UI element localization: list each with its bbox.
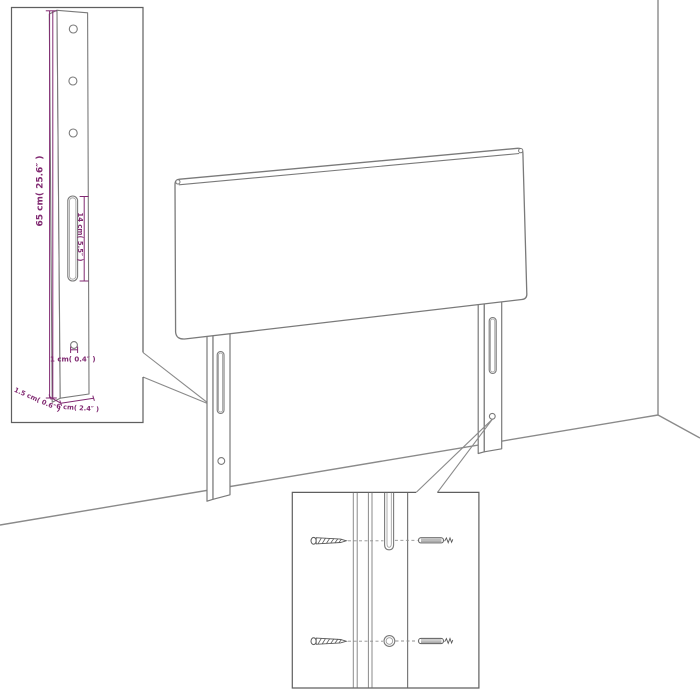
headboard-panel — [175, 148, 527, 339]
dimension-label-slot-length: 14 cm( 5.5″ ) — [76, 213, 84, 262]
screw-inset-callout-wedge — [416, 419, 492, 492]
dimension-label-hole-size: 1 cm( 0.4″ ) — [50, 356, 96, 364]
inset-screw-mounting-detail — [292, 492, 479, 688]
right-leg-screw-hole — [489, 413, 495, 419]
bracket-hole — [69, 129, 77, 137]
callout-line — [143, 353, 207, 403]
callout-line — [143, 377, 207, 403]
left-leg-screw-hole — [218, 458, 225, 465]
bracket-hole — [69, 25, 77, 33]
panel-edge-curl-left — [176, 180, 180, 184]
left-leg-side-face — [207, 330, 213, 501]
headboard — [175, 148, 527, 501]
dimension-label-leg-height: 65 cm( 25.6″ ) — [36, 155, 46, 226]
floor-line-right — [658, 415, 700, 438]
bracket-bottom-hole — [71, 342, 78, 349]
assembly-diagram: 65 cm( 25.6″ ) 14 cm( 5.5″ ) 1 cm( 0.4″ … — [0, 0, 700, 700]
panel-edge-curl-right — [519, 149, 523, 153]
mounting-leg-enlarged — [49, 10, 89, 402]
diagram-page: 65 cm( 25.6″ ) 14 cm( 5.5″ ) 1 cm( 0.4″ … — [0, 0, 700, 700]
callout-line — [416, 419, 492, 492]
bracket-hole — [69, 77, 77, 85]
inset-leg-dimension-detail: 65 cm( 25.6″ ) 14 cm( 5.5″ ) 1 cm( 0.4″ … — [12, 8, 144, 423]
inset-box-border — [292, 492, 479, 688]
callout-line — [437, 419, 492, 492]
left-inset-callout-wedge — [143, 353, 207, 404]
leg-hole-enlarged — [384, 636, 395, 647]
